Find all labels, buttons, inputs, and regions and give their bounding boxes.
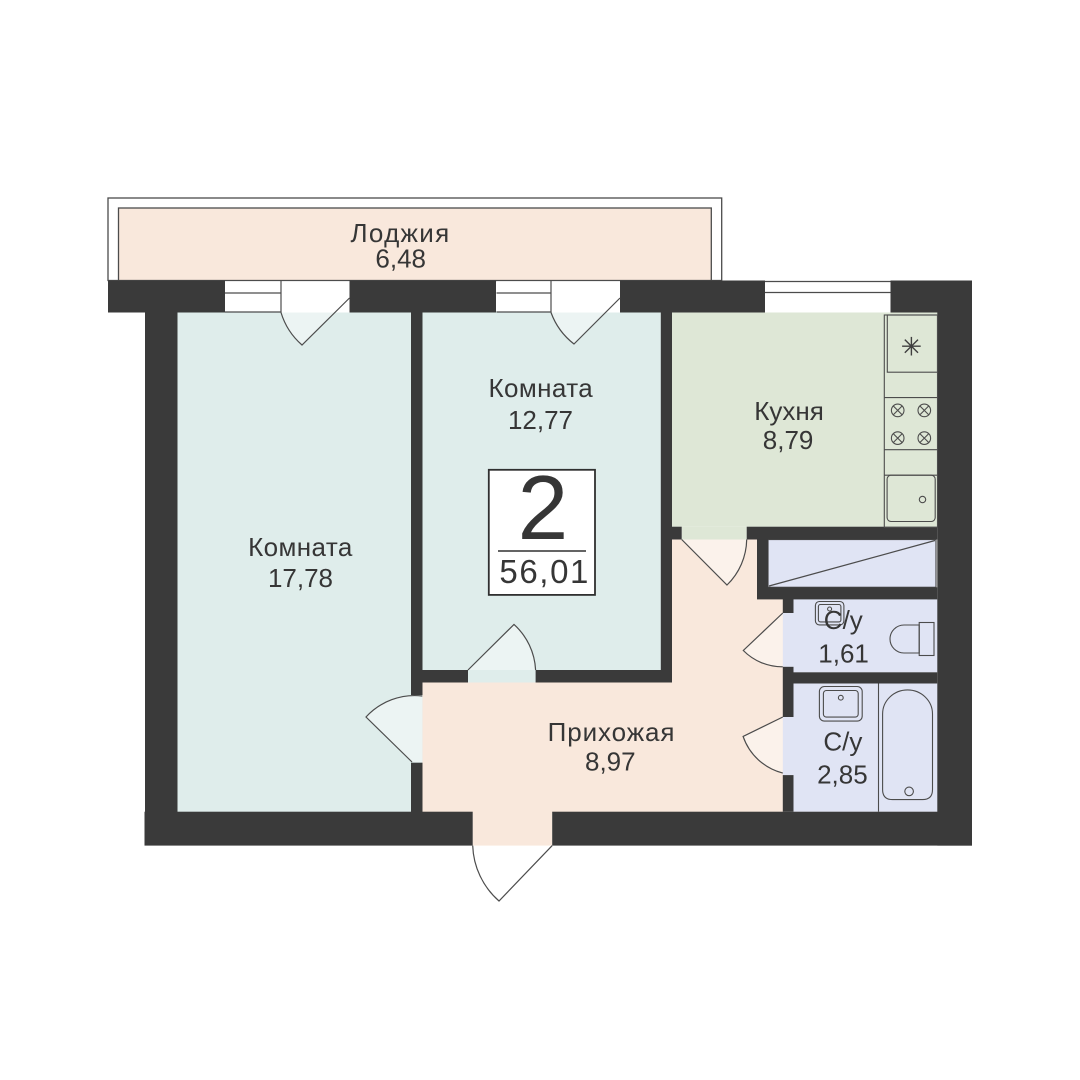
svg-text:8,97: 8,97 [585, 746, 636, 776]
svg-text:С/у: С/у [823, 727, 862, 757]
svg-text:2: 2 [518, 458, 569, 559]
svg-text:Комната: Комната [488, 373, 593, 403]
svg-text:1,61: 1,61 [818, 639, 869, 669]
svg-text:Комната: Комната [248, 532, 353, 562]
svg-text:Прихожая: Прихожая [548, 717, 676, 747]
svg-text:17,78: 17,78 [268, 563, 333, 593]
svg-text:6,48: 6,48 [375, 243, 426, 273]
svg-text:Кухня: Кухня [754, 396, 824, 426]
svg-text:56,01: 56,01 [499, 553, 590, 590]
svg-text:12,77: 12,77 [508, 405, 573, 435]
svg-text:2,85: 2,85 [817, 760, 868, 790]
svg-text:С/у: С/у [824, 605, 863, 635]
svg-text:8,79: 8,79 [763, 425, 814, 455]
